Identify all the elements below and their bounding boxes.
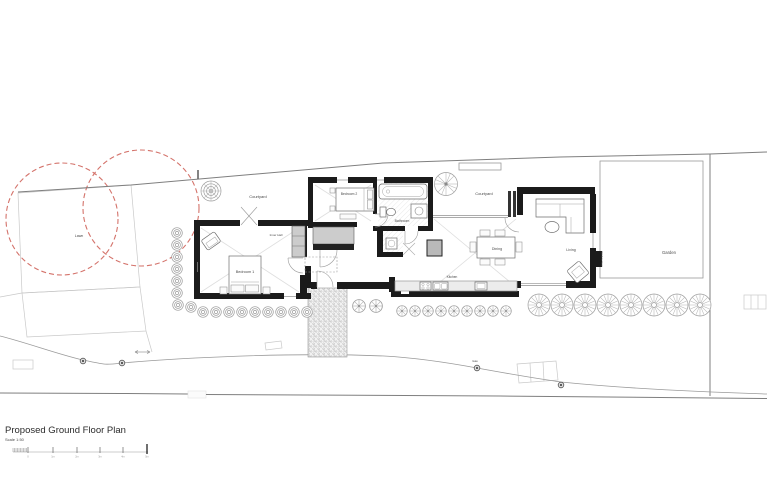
room-label-inner-hall: Inner Hall	[270, 233, 283, 237]
tree-canopy-icon	[6, 163, 118, 275]
room-label-dining: Dining	[492, 247, 502, 251]
floor-plan-drawing: Courtyard Courtyard Garden Lawn Bedroom …	[0, 0, 768, 483]
gravel-path	[308, 288, 347, 357]
annotation-gate: Gate	[472, 359, 478, 363]
shrub-column-west	[172, 228, 197, 313]
room-label-bathroom: Bathroom	[395, 219, 410, 223]
hob-icon	[420, 282, 431, 290]
room-label-garden: Garden	[662, 250, 677, 255]
garden-parcel	[600, 161, 703, 278]
room-label-lawn: Lawn	[75, 234, 84, 238]
direction-arrow-icon	[135, 351, 150, 354]
boundary-posts	[80, 358, 564, 388]
floor-plan-sheet: Courtyard Courtyard Garden Lawn Bedroom …	[0, 0, 768, 483]
annotation-window-seat: Window Seat	[600, 251, 604, 267]
room-label-bedroom1: Bedroom 1	[236, 270, 255, 274]
vanity-basin	[411, 204, 427, 218]
title-block: Proposed Ground Floor Plan Scale 1:50 0 …	[5, 425, 149, 459]
sheet-title: Proposed Ground Floor Plan	[5, 425, 126, 436]
tree-icon	[435, 173, 458, 196]
tree-icon	[201, 181, 221, 201]
scale-tick-label: 1m	[51, 455, 55, 459]
scale-tick-label: 4m	[121, 455, 125, 459]
shrub-row-kitchen	[397, 306, 512, 317]
fridge-larder-unit	[427, 240, 442, 256]
scale-tick-label: 3m	[98, 455, 102, 459]
shrub-pair-path	[353, 300, 383, 313]
boundary-store	[459, 163, 501, 170]
room-labels: Courtyard Courtyard Garden Lawn Bedroom …	[75, 191, 677, 363]
hall-storage-bench	[313, 227, 354, 244]
room-label-courtyard-west: Courtyard	[249, 194, 267, 199]
room-label-bedroom2: Bedroom 2	[341, 192, 358, 196]
tree-canopy-icon	[83, 150, 199, 266]
sofa-l-shaped	[536, 199, 584, 233]
armchair-living	[567, 261, 590, 284]
room-label-courtyard-east: Courtyard	[475, 191, 493, 196]
kitchen-counter	[395, 281, 517, 291]
scale-bar: 0 1m 2m 3m 4m 5m	[13, 444, 149, 459]
scale-tick-label: 2m	[75, 455, 79, 459]
room-label-living: Living	[566, 248, 575, 252]
tree-canopy-circles	[6, 150, 199, 275]
sheet-scale: Scale 1:50	[5, 437, 25, 442]
garden-store	[744, 295, 766, 309]
scale-tick-label: 0	[27, 455, 29, 459]
footpath-line	[0, 336, 767, 394]
scale-tick-label: 5m	[145, 455, 149, 459]
bathtub	[379, 184, 427, 199]
room-label-kitchen: Kitchen	[447, 275, 458, 279]
coffee-table	[545, 222, 559, 233]
bench-wall-edge	[313, 244, 354, 250]
washing-machine	[386, 238, 397, 249]
shrub-row-bedroom-wing	[198, 307, 313, 318]
shrub-row-garden	[528, 294, 711, 316]
armchair	[201, 231, 221, 250]
wardrobe-unit	[292, 226, 305, 257]
